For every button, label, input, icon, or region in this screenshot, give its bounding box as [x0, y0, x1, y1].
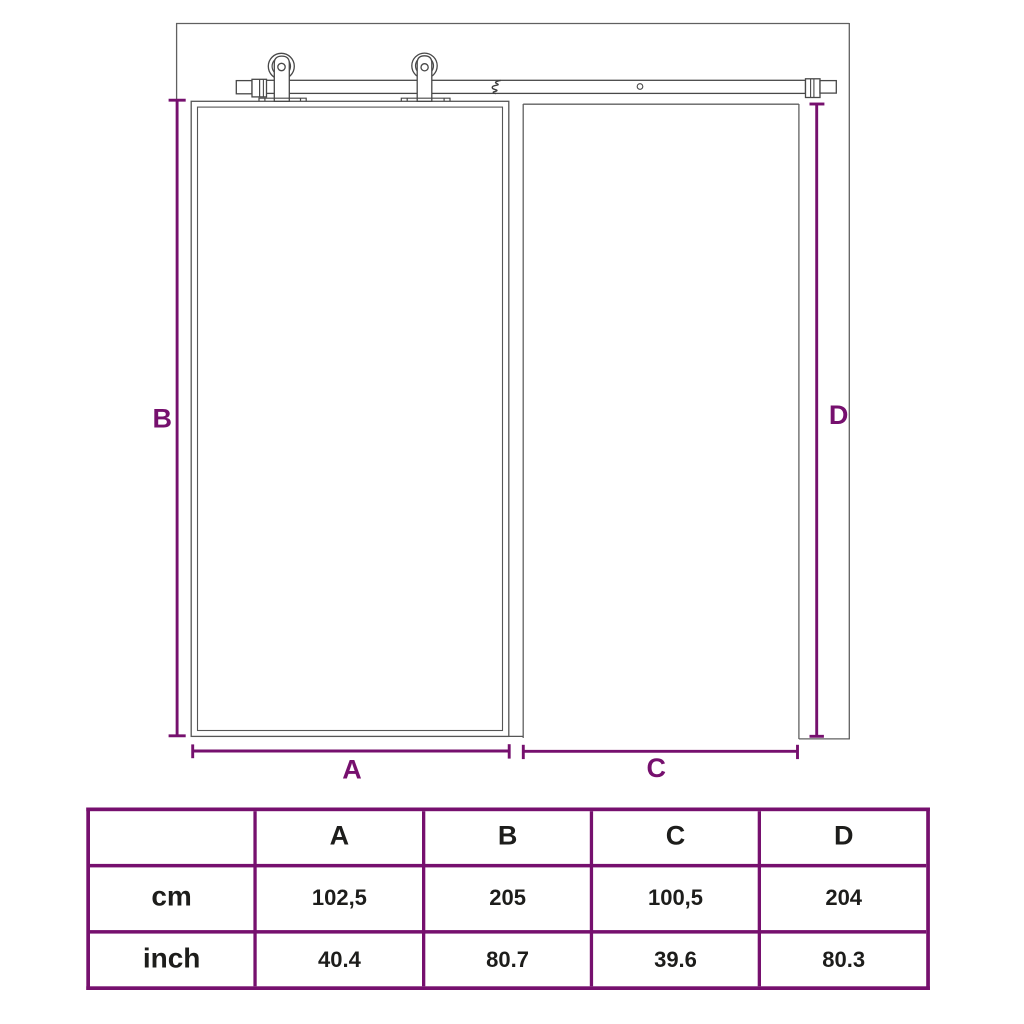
svg-text:205: 205: [489, 885, 526, 910]
svg-text:100,5: 100,5: [648, 885, 703, 910]
svg-text:B: B: [153, 403, 173, 433]
svg-text:D: D: [829, 400, 849, 430]
svg-text:C: C: [647, 753, 667, 783]
svg-text:40.4: 40.4: [318, 947, 362, 972]
svg-text:B: B: [498, 821, 518, 851]
svg-text:80.7: 80.7: [486, 947, 529, 972]
svg-text:cm: cm: [151, 880, 191, 911]
svg-text:A: A: [330, 821, 350, 851]
svg-text:80.3: 80.3: [822, 947, 865, 972]
svg-text:C: C: [666, 821, 686, 851]
svg-text:39.6: 39.6: [654, 947, 697, 972]
svg-text:inch: inch: [143, 943, 201, 974]
svg-text:A: A: [342, 755, 362, 785]
svg-text:D: D: [834, 821, 854, 851]
svg-text:204: 204: [825, 885, 862, 910]
svg-text:102,5: 102,5: [312, 885, 367, 910]
